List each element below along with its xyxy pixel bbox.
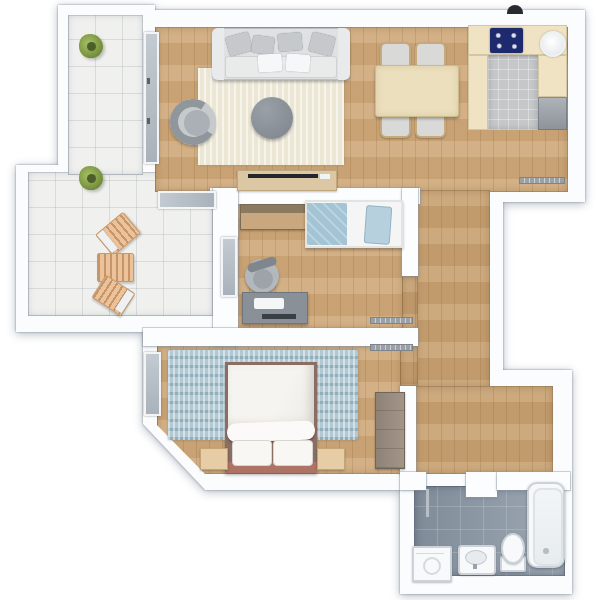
washer-drum: [423, 557, 441, 575]
sofa-armrest: [212, 28, 224, 80]
double-bed: [225, 362, 317, 473]
window-living-terrace: [144, 32, 159, 164]
sofa-pillow: [308, 31, 336, 56]
kitchen-sink: [540, 31, 566, 57]
bed-blanket: [307, 203, 347, 245]
bed-pillow: [364, 205, 393, 245]
bathtub-drain: [543, 548, 549, 554]
tv-sideboard: [237, 170, 337, 191]
window-handle: [147, 118, 150, 124]
wardrobe: [375, 392, 405, 469]
dining-table: [375, 65, 459, 117]
kitchen-counter-left: [468, 55, 488, 130]
washer-lid-line: [416, 553, 444, 554]
toilet-bowl: [501, 533, 525, 564]
keyboard: [262, 314, 296, 319]
plant-icon: [79, 34, 103, 58]
bed-pillow: [273, 440, 313, 466]
sofa-cushion-white: [258, 53, 283, 72]
hallway-floor-upper: [415, 190, 490, 388]
glass-door-terrace: [158, 191, 216, 209]
radiator: [370, 344, 413, 351]
bathtub-basin: [533, 488, 563, 566]
tv: [248, 174, 318, 178]
office-dresser: [240, 204, 308, 230]
wall-bath-top-left: [400, 472, 426, 490]
laptop: [254, 298, 284, 309]
office-chair: [245, 259, 279, 293]
sofa-pillow: [225, 31, 253, 57]
washbasin-bowl: [465, 550, 487, 565]
lounge-chair: [97, 253, 134, 282]
faucet: [473, 564, 477, 569]
nightstand: [200, 448, 228, 470]
armchair: [170, 99, 216, 145]
radiator: [519, 177, 565, 184]
sofa-armrest: [338, 28, 350, 80]
hallway-floor-lower: [415, 386, 553, 474]
coffee-table: [251, 97, 293, 139]
radiator: [370, 317, 413, 324]
wall-bath-stub: [466, 472, 497, 497]
bedroom-door-threshold: [400, 346, 418, 386]
washbasin: [458, 545, 496, 575]
towel-radiator: [426, 489, 429, 517]
bed-duvet: [228, 365, 314, 428]
kitchen-floor: [488, 55, 538, 130]
window-office-terrace: [221, 237, 237, 297]
office-chair-seat: [253, 269, 273, 289]
window-handle: [147, 78, 150, 84]
media-device: [320, 174, 330, 179]
desk: [242, 292, 308, 324]
nightstand: [317, 448, 345, 470]
roof-vent-icon: [507, 5, 523, 14]
bed-pillow: [232, 440, 272, 466]
plant-icon: [79, 166, 103, 190]
kitchen-appliance: [538, 97, 567, 130]
sofa-cushion-white: [285, 53, 310, 73]
sofa-pillow: [277, 32, 302, 52]
cooktop: [490, 28, 523, 53]
wall-office-hall: [402, 188, 418, 276]
kitchen-counter-right: [538, 55, 567, 97]
washing-machine: [412, 546, 452, 582]
armchair-seat: [184, 110, 210, 136]
floor-plan: [0, 0, 600, 600]
window-bedroom: [144, 352, 161, 416]
single-bed: [305, 200, 403, 248]
sofa-pillow: [251, 35, 275, 56]
sofa: [212, 28, 350, 80]
bathtub: [527, 482, 565, 568]
